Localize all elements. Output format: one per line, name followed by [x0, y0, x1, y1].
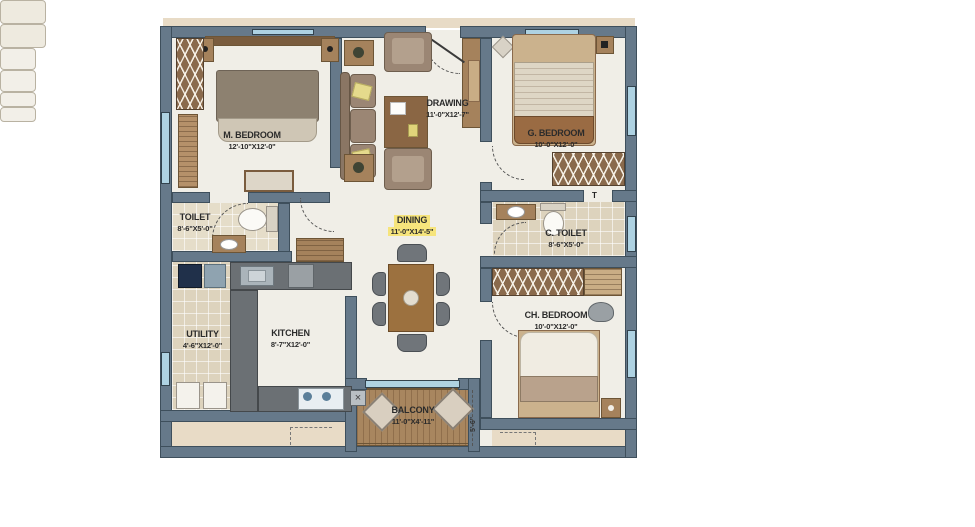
g-bed-pillow-right: [0, 70, 36, 92]
ch-shelf: [584, 268, 622, 296]
dining-chair-top: [397, 244, 427, 262]
window-right-ch-bedroom: [627, 330, 636, 378]
ch-bed-blanket: [520, 376, 598, 402]
dining-wash-counter: [296, 238, 344, 262]
room-dims: 11'-0"X14'-5": [388, 227, 437, 237]
hob-burner-2: [322, 392, 331, 401]
wall-gbed-bottom-b: [612, 190, 637, 202]
room-label-toilet: TOILET 8'-6"X5'-0": [170, 212, 220, 233]
window-top-m-bedroom: [252, 29, 314, 35]
room-name: DRAWING: [426, 98, 468, 110]
ledge-dashed-mark-right: [500, 432, 536, 445]
room-label-balcony: BALCONY 11'-0"X4'-11": [363, 405, 463, 426]
drawing-armchair-bottom-seat: [392, 156, 424, 182]
dining-table-plate: [403, 290, 419, 306]
m-bed-pillow-left: [0, 0, 46, 24]
m-bed-blanket: [216, 70, 319, 122]
room-name: CH. BEDROOM: [525, 310, 588, 322]
window-right-g-bedroom: [627, 86, 636, 136]
m-bed-headboard: [205, 36, 335, 46]
c-toilet-basin: [507, 206, 525, 218]
dining-chair-bottom: [397, 334, 427, 352]
dining-chair-right-2: [436, 302, 450, 326]
room-label-c-toilet: C. TOILET 8'-6"X5'-0": [516, 228, 616, 249]
dining-chair-left-1: [372, 272, 386, 296]
room-dims: 8'-6"X5'-0": [548, 240, 583, 250]
drawing-plant-top: [353, 47, 364, 58]
m-lamp-right: [327, 46, 333, 52]
room-label-utility: UTILITY 4'-6"X12'-0": [160, 329, 245, 350]
wall-gbed-bottom-a: [480, 190, 584, 202]
g-nightstand-item: [601, 41, 608, 48]
wall-mbed-toilet-left: [172, 192, 210, 203]
dining-chair-right-1: [436, 272, 450, 296]
m-wardrobe: [176, 38, 204, 110]
room-dims: 12'-10"X12'-0": [228, 142, 275, 152]
room-name: KITCHEN: [271, 328, 310, 340]
room-name: DINING: [394, 215, 430, 227]
marker-t: T: [592, 191, 597, 200]
wall-balcony-right: [468, 378, 480, 452]
washing-machine-1: [176, 382, 200, 409]
g-bed-pillow-left: [0, 48, 36, 70]
ch-wardrobe: [492, 268, 584, 296]
kitchen-sink-basin: [248, 270, 266, 282]
room-label-m-bedroom: M. BEDROOM 12'-10"X12'-0": [192, 130, 312, 151]
room-name: G. BEDROOM: [527, 128, 584, 140]
kitchen-counter-left: [230, 290, 258, 412]
drawing-plant-bottom: [353, 162, 364, 173]
drawing-sofa-seat-2: [350, 109, 376, 143]
m-bed-pillow-right: [0, 24, 46, 48]
ch-nightstand-knob: [608, 405, 614, 411]
drawing-armchair-top-seat: [392, 38, 424, 64]
wall-ctoilet-left: [480, 202, 492, 224]
room-name: UTILITY: [186, 329, 219, 341]
kitchen-fridge: [288, 264, 314, 288]
g-wardrobe: [552, 152, 625, 186]
room-dims: 8'-7"X12'-0": [271, 340, 310, 350]
window-left-utility: [161, 352, 170, 386]
washing-machine-2: [203, 382, 227, 409]
toilet-basin: [220, 239, 238, 250]
room-name: M. BEDROOM: [223, 130, 281, 142]
room-dims: 4'-6"X12'-0": [183, 341, 222, 351]
room-dims: 10'-0"X12'-0": [534, 322, 577, 332]
room-name: C. TOILET: [545, 228, 587, 240]
wall-chbed-left-bottom: [480, 340, 492, 418]
window-right-c-toilet: [627, 216, 636, 252]
floor-plan: T × 5'-6" M. BEDROOM 12'-10"X12'-0" DRAW…: [0, 0, 975, 527]
room-label-kitchen: KITCHEN 8'-7"X12'-0": [248, 328, 333, 349]
ch-bed-pillow-right: [0, 107, 36, 122]
dining-chair-left-2: [372, 302, 386, 326]
wall-bottom: [160, 446, 637, 458]
c-toilet-wc-tank: [540, 203, 566, 211]
drawing-table-book: [408, 124, 418, 137]
ledge-dashed-mark-left: [290, 427, 332, 445]
m-bench: [244, 170, 294, 192]
wall-chbed-bottom: [480, 418, 637, 430]
room-name: TOILET: [180, 212, 211, 224]
room-dims: 8'-6"X5'-0": [177, 224, 212, 234]
room-label-g-bedroom: G. BEDROOM 10'-0"X12'-0": [496, 128, 616, 149]
window-left-m-bedroom: [161, 112, 170, 184]
wall-chbed-left-top: [480, 268, 492, 302]
wall-gbed-left: [480, 38, 492, 142]
utility-sink-light: [204, 264, 226, 288]
room-label-ch-bedroom: CH. BEDROOM 10'-0"X12'-0": [496, 310, 616, 331]
room-dims: 11'-0"X4'-11": [392, 417, 434, 427]
toilet-wc-tank: [266, 206, 278, 232]
room-name: BALCONY: [391, 405, 434, 417]
room-dims: 10'-0"X12'-0": [534, 140, 577, 150]
ch-bed-pillow-left: [0, 92, 36, 107]
g-bed-duvet: [514, 62, 594, 118]
room-label-dining: DINING 11'-0"X14'-5": [362, 215, 462, 236]
ch-bed-duvet: [520, 332, 598, 378]
utility-sink-dark: [178, 264, 202, 288]
wall-left: [160, 26, 172, 458]
foyer-panel-inner: [468, 60, 480, 102]
balcony-sliding-door: [365, 380, 460, 388]
wall-ctoilet-bottom: [480, 256, 637, 268]
balcony-side-dimension: 5'-6": [470, 417, 477, 432]
hob-burner-1: [303, 392, 312, 401]
wall-kitchen-dining: [345, 296, 357, 388]
balcony-corner-unit: ×: [350, 390, 366, 406]
room-dims: 11'-0"X12'-7": [426, 110, 469, 120]
toilet-wc-bowl: [238, 208, 267, 231]
room-label-drawing: DRAWING 11'-0"X12'-7": [400, 98, 495, 119]
